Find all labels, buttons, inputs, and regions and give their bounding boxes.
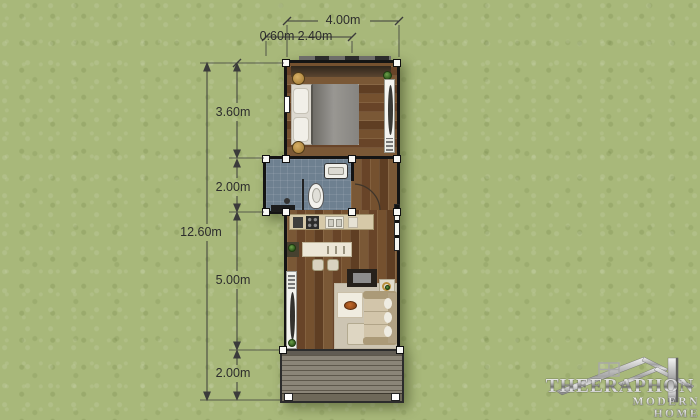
dim-side-bedroom: 3.60m <box>216 105 251 119</box>
dim-top-mid: 2.40m <box>298 29 333 43</box>
dim-top-total: 4.00m <box>326 13 361 27</box>
dimension-lines <box>0 0 700 420</box>
floor-plan-canvas: 4.00m 0.60m 2.40m 3.60m 2.00m 12.60m 5.0… <box>0 0 700 420</box>
dim-side-living: 5.00m <box>216 273 251 287</box>
dim-top-left: 0.60m <box>260 29 295 43</box>
dim-side-bath: 2.00m <box>216 180 251 194</box>
dim-side-terrace: 2.00m <box>216 366 251 380</box>
dim-side-total: 12.60m <box>180 225 222 239</box>
